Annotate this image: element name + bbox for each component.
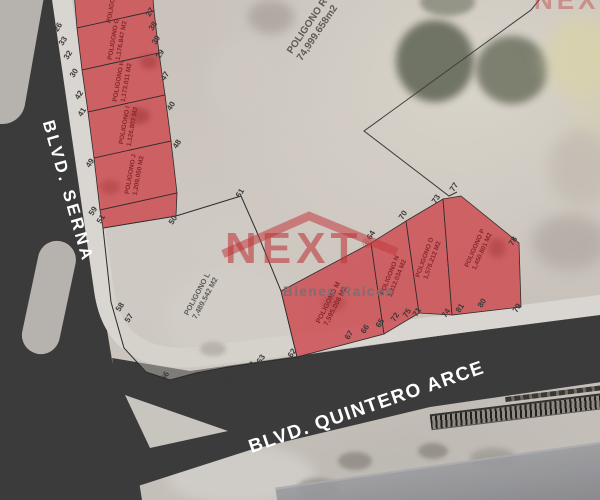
parcel-label: POLIGONO L7,489.542 M2 — [182, 271, 220, 321]
parcel-label: POLIGONO J1,209.050 M2 — [124, 154, 146, 197]
parcel-label: POLIGONO I1,126.807 M2 — [118, 105, 140, 147]
watermark-partial: NEXT — [534, 0, 600, 16]
parcel-label: POLIGONO P1,450.801 M2 — [464, 228, 495, 272]
parcel-label: POLIGONO O1,576.212 M2 — [415, 237, 444, 282]
parcel-label: POLIGONO G1,176.847 M2 — [107, 18, 130, 62]
site-plan-map: 2633323042414959515061273839294740485857… — [0, 0, 600, 500]
parcel-label: POLIGONO N1,312.034 M2 — [379, 255, 409, 299]
parcel-label: POLIGONO R74,999.658m2 — [285, 0, 341, 63]
parcel-label: POLIGONO H1,173.011 M2 — [112, 60, 135, 104]
parcel-label: POLIGONO M7,595.006 M2 — [315, 281, 351, 329]
